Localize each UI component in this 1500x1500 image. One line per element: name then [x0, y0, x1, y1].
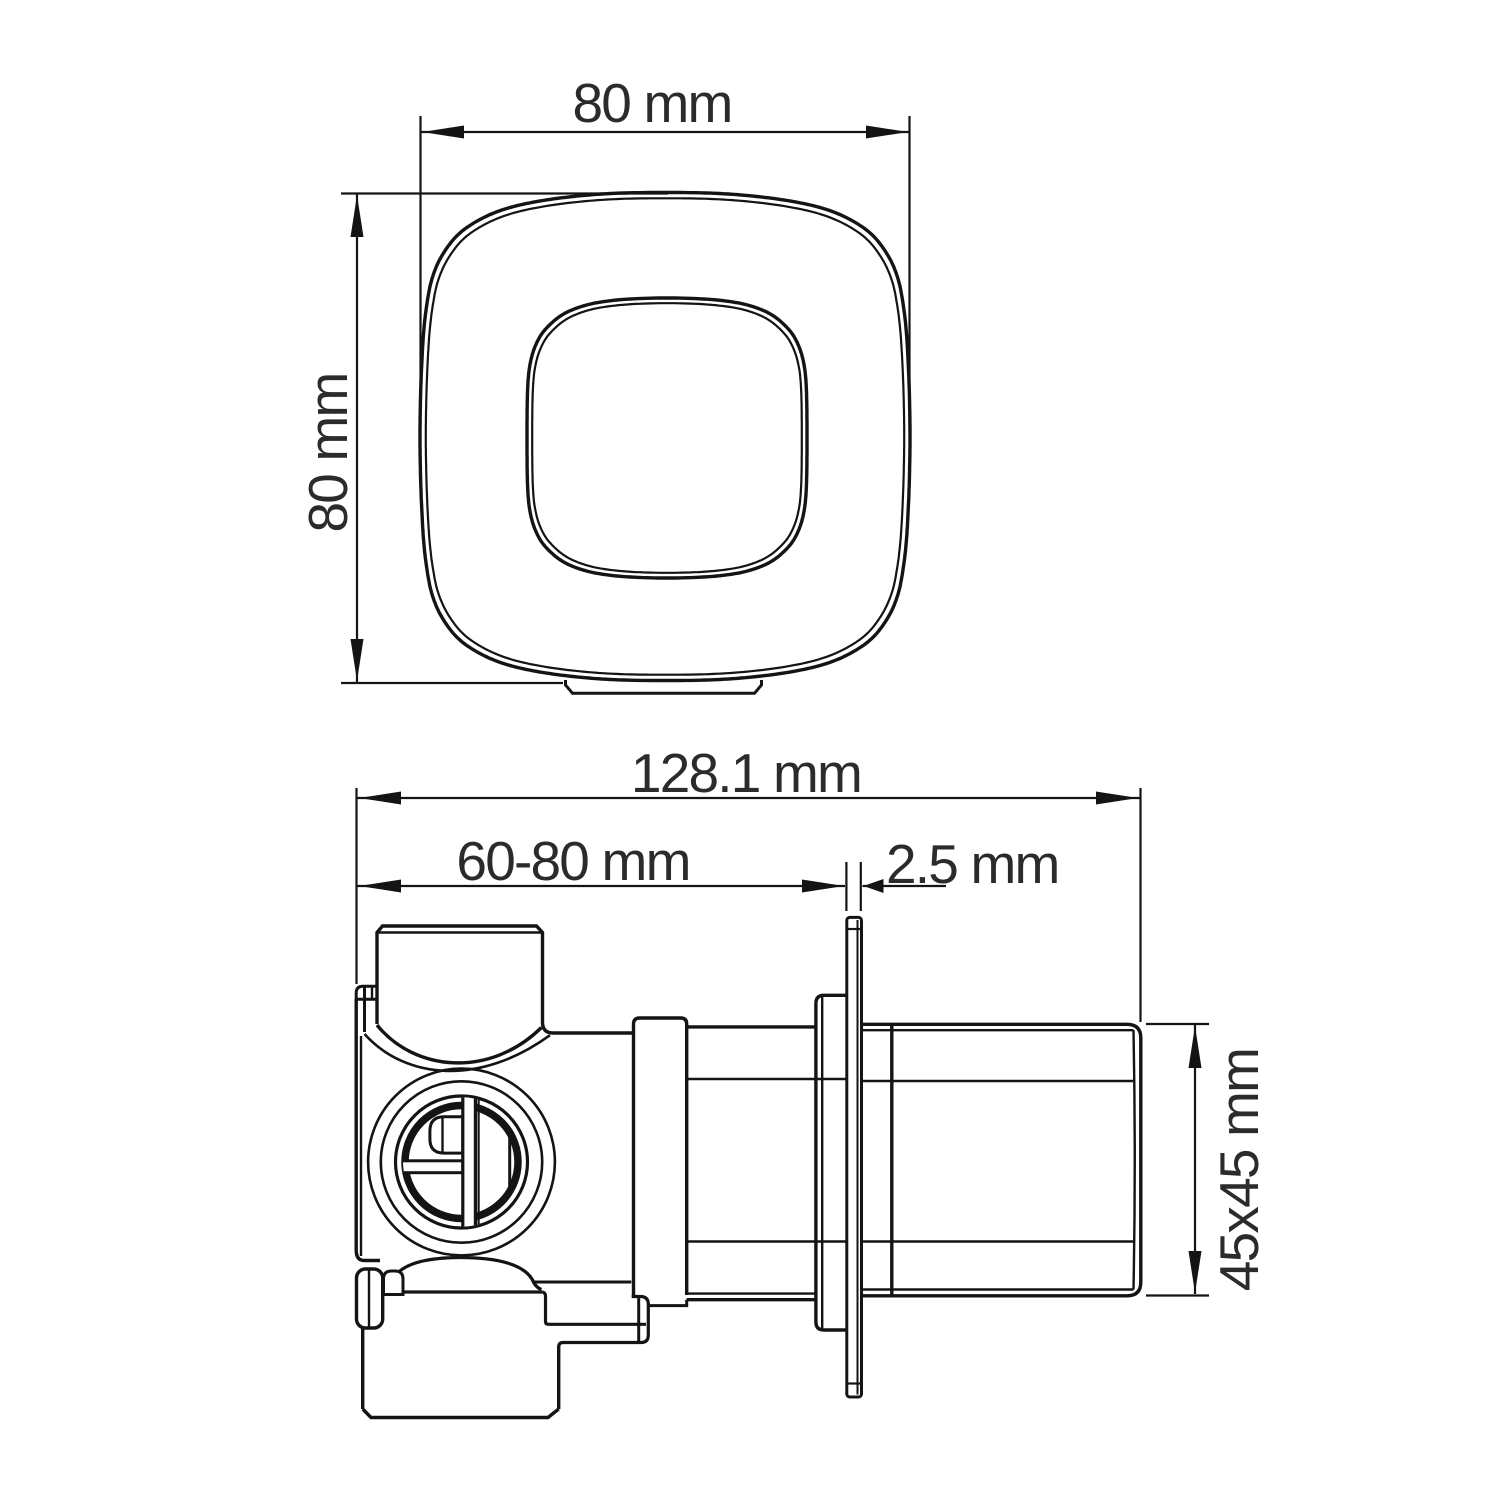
svg-text:45x45 mm: 45x45 mm [1208, 1049, 1270, 1291]
svg-text:60-80 mm: 60-80 mm [456, 830, 689, 892]
svg-text:128.1 mm: 128.1 mm [631, 742, 861, 804]
svg-text:80 mm: 80 mm [297, 373, 359, 532]
svg-text:80 mm: 80 mm [572, 72, 731, 134]
svg-text:2.5 mm: 2.5 mm [886, 833, 1059, 895]
